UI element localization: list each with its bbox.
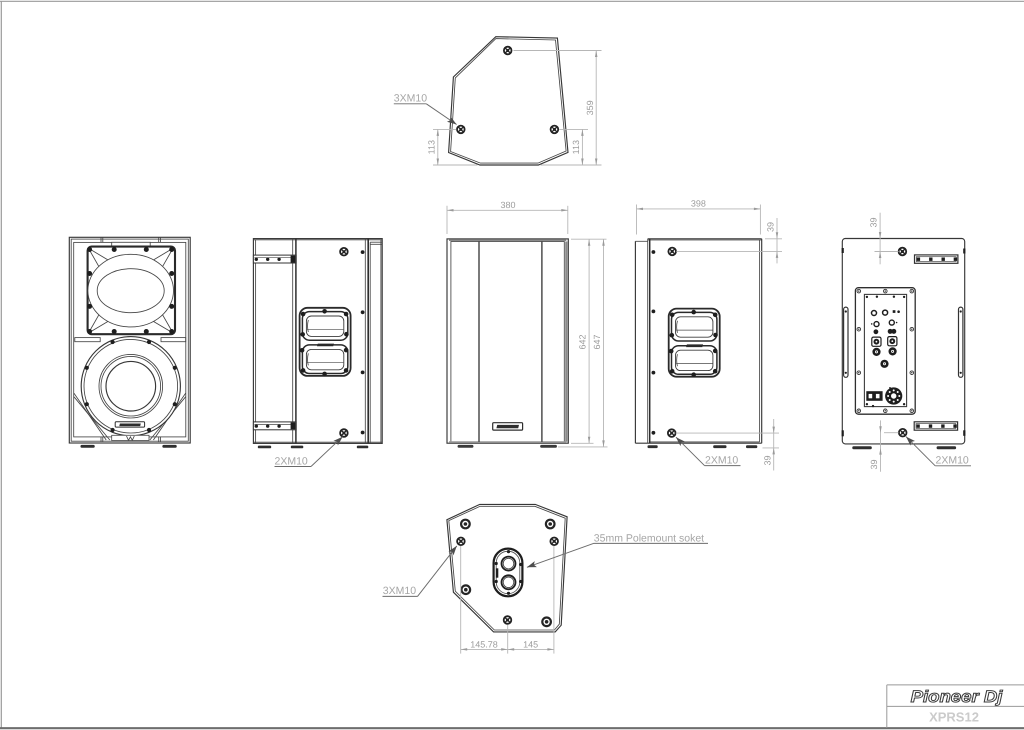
svg-text:39: 39 (762, 455, 772, 465)
svg-text:2XM10: 2XM10 (705, 454, 738, 466)
svg-text:39: 39 (869, 217, 879, 227)
svg-text:XPRS12: XPRS12 (929, 710, 979, 725)
svg-text:3XM10: 3XM10 (394, 93, 427, 105)
svg-text:113: 113 (427, 140, 437, 154)
svg-text:3XM10: 3XM10 (383, 585, 416, 597)
svg-text:145: 145 (523, 640, 538, 650)
svg-text:647: 647 (592, 334, 602, 349)
svg-text:39: 39 (869, 459, 879, 469)
svg-text:39: 39 (766, 222, 776, 232)
svg-text:113: 113 (571, 140, 581, 154)
svg-text:2XM10: 2XM10 (275, 455, 308, 467)
svg-text:Pioneer Dj: Pioneer Dj (911, 688, 1003, 706)
svg-text:380: 380 (500, 200, 515, 210)
svg-text:398: 398 (691, 199, 706, 209)
svg-text:145.78: 145.78 (470, 640, 498, 650)
svg-text:2XM10: 2XM10 (936, 455, 969, 467)
svg-text:35mm Polemount soket: 35mm Polemount soket (594, 532, 704, 544)
svg-text:642: 642 (578, 334, 588, 349)
svg-text:359: 359 (585, 100, 595, 115)
